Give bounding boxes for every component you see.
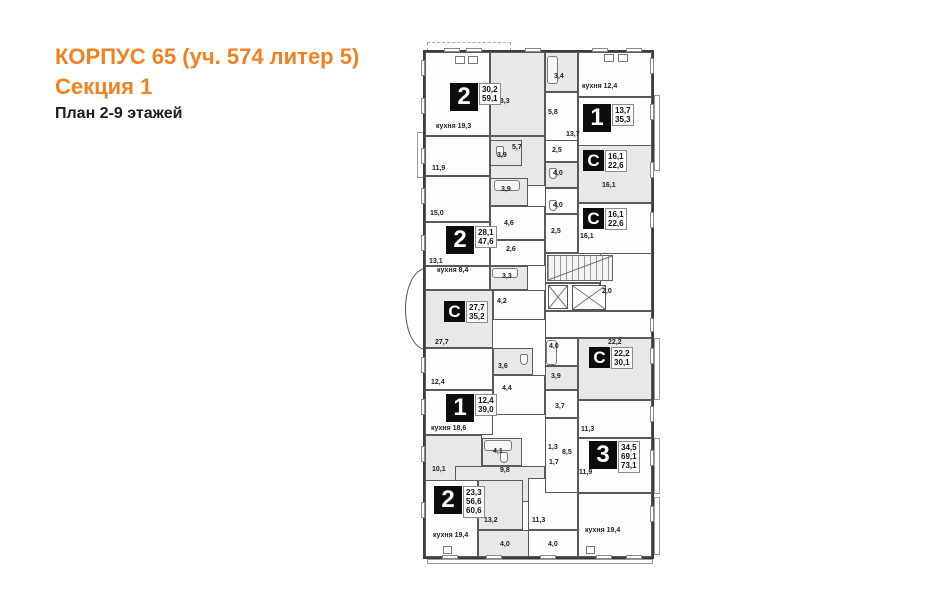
balcony-outline <box>654 497 660 555</box>
balcony-outline <box>654 438 660 494</box>
kitchen-appliance-icon <box>468 56 478 64</box>
window <box>421 60 425 76</box>
balcony-outline <box>427 559 653 564</box>
kitchen-appliance-icon <box>443 546 452 554</box>
apartment-badge: 228,147,6 <box>446 226 496 256</box>
hall-4-4 <box>493 375 545 415</box>
floor-plan: кухня 19,318,35,711,915,013,1кухня 8,43,… <box>0 0 941 600</box>
window <box>421 148 425 164</box>
dimension-label: 3,6 <box>498 363 538 371</box>
dimension-label: 4,2 <box>497 298 537 306</box>
dimension-label: 10,1 <box>432 466 472 474</box>
apartment-areas: 12,439,0 <box>475 394 497 416</box>
apartment-areas: 16,122,6 <box>605 150 627 172</box>
kitchen-appliance-icon <box>604 54 614 62</box>
apartment-badge: 112,439,0 <box>446 394 496 424</box>
dimension-label: 3,9 <box>551 373 591 381</box>
apartment-type-number: 2 <box>446 226 474 254</box>
dimension-label: 4,1 <box>493 448 533 456</box>
dimension-label: 3,4 <box>554 73 594 81</box>
dimension-label: кухня 12,4 <box>582 83 622 91</box>
dimension-label: кухня 19,4 <box>433 532 473 540</box>
dimension-label: кухня 19,3 <box>436 123 476 131</box>
window <box>525 48 541 52</box>
apartment-areas: 30,259,1 <box>479 83 501 105</box>
apartment-areas: 28,147,6 <box>475 226 497 248</box>
window <box>650 506 654 522</box>
dimension-label: 1,7 <box>549 459 589 467</box>
window <box>421 446 425 462</box>
dimension-label: 5,8 <box>548 109 588 117</box>
balcony-outline <box>654 338 660 400</box>
window <box>421 188 425 204</box>
apartment-type-number: С <box>583 150 604 171</box>
dimension-label: 13,1 <box>429 258 469 266</box>
dimension-label: 15,0 <box>430 210 470 218</box>
dimension-label: 2,0 <box>602 288 642 296</box>
apartment-badge: 230,259,1 <box>450 83 500 113</box>
window <box>650 348 654 364</box>
window <box>592 48 608 52</box>
kitchen-appliance-icon <box>618 54 628 62</box>
window <box>421 502 425 518</box>
apartment-type-number: С <box>444 301 465 322</box>
dimension-label: кухня 19,4 <box>585 527 625 535</box>
apartment-areas: 16,122,6 <box>605 208 627 230</box>
dimension-label: 4,0 <box>549 343 589 351</box>
window <box>442 555 458 559</box>
apartment-areas: 23,356,660,6 <box>463 486 485 518</box>
apartment-areas: 34,569,173,1 <box>618 441 640 473</box>
apartment-type-number: 3 <box>589 441 617 469</box>
dimension-label: 11,3 <box>581 426 621 434</box>
window <box>650 212 654 228</box>
window <box>650 104 654 120</box>
window <box>421 235 425 251</box>
elevator-shaft <box>572 285 606 310</box>
window <box>650 318 654 332</box>
dimension-label: 4,4 <box>502 385 542 393</box>
apartment-type-number: С <box>589 347 610 368</box>
apartment-badge: С16,122,6 <box>583 150 633 180</box>
dimension-label: 27,7 <box>435 339 475 347</box>
apartment-badge: С22,230,1 <box>589 347 639 377</box>
window <box>444 48 460 52</box>
dimension-label: 22,2 <box>608 339 648 347</box>
window <box>650 450 654 466</box>
dimension-label: 13,2 <box>484 517 524 525</box>
dimension-label: 5,7 <box>512 144 552 152</box>
window <box>650 162 654 178</box>
dimension-label: 3,3 <box>502 273 542 281</box>
cross-lines <box>549 286 567 308</box>
window <box>540 555 556 559</box>
dimension-label: 11,9 <box>432 165 472 173</box>
dimension-label: 2,6 <box>506 246 546 254</box>
kitchen-appliance-icon <box>455 56 465 64</box>
window <box>486 555 502 559</box>
window <box>421 357 425 373</box>
window <box>626 48 642 52</box>
apartment-badge: 334,569,173,1 <box>589 441 639 471</box>
dimension-label: кухня 18,6 <box>431 425 471 433</box>
balcony-outline <box>654 95 660 171</box>
apartment-badge: 113,735,3 <box>583 104 633 134</box>
cross-lines <box>573 286 605 309</box>
apartment-type-number: 1 <box>583 104 611 132</box>
dimension-label: 9,8 <box>500 467 540 475</box>
dimension-label: кухня 8,4 <box>437 267 477 275</box>
dimension-label: 4,0 <box>548 541 588 549</box>
window <box>421 98 425 114</box>
apartment-badge: С16,122,6 <box>583 208 633 238</box>
dimension-label: 3,9 <box>497 152 537 160</box>
window <box>626 555 642 559</box>
apartment-areas: 22,230,1 <box>611 347 633 369</box>
window <box>650 58 654 74</box>
apartment-areas: 13,735,3 <box>612 104 634 126</box>
dimension-label: 16,1 <box>602 182 642 190</box>
apartment-type-number: С <box>583 208 604 229</box>
apartment-badge: 223,356,660,6 <box>434 486 484 516</box>
window <box>466 48 482 52</box>
lobby-strip <box>545 311 652 338</box>
apartment-type-number: 2 <box>450 83 478 111</box>
dimension-label: 18,3 <box>496 98 536 106</box>
apartment-type-number: 2 <box>434 486 462 514</box>
dimension-label: 12,4 <box>431 379 471 387</box>
apartment-type-number: 1 <box>446 394 474 422</box>
window <box>596 555 612 559</box>
dimension-label: 11,3 <box>532 517 572 525</box>
apartment-badge: С27,735,2 <box>444 301 494 331</box>
dimension-label: 4,0 <box>500 541 540 549</box>
window <box>421 399 425 415</box>
stairs <box>547 255 613 281</box>
elevator-shaft <box>548 285 568 309</box>
dimension-label: 3,7 <box>555 403 595 411</box>
cross-lines <box>548 256 612 280</box>
window <box>650 406 654 422</box>
dimension-label: 3,9 <box>501 186 541 194</box>
apartment-areas: 27,735,2 <box>466 301 488 323</box>
dimension-label: 4,6 <box>504 220 544 228</box>
